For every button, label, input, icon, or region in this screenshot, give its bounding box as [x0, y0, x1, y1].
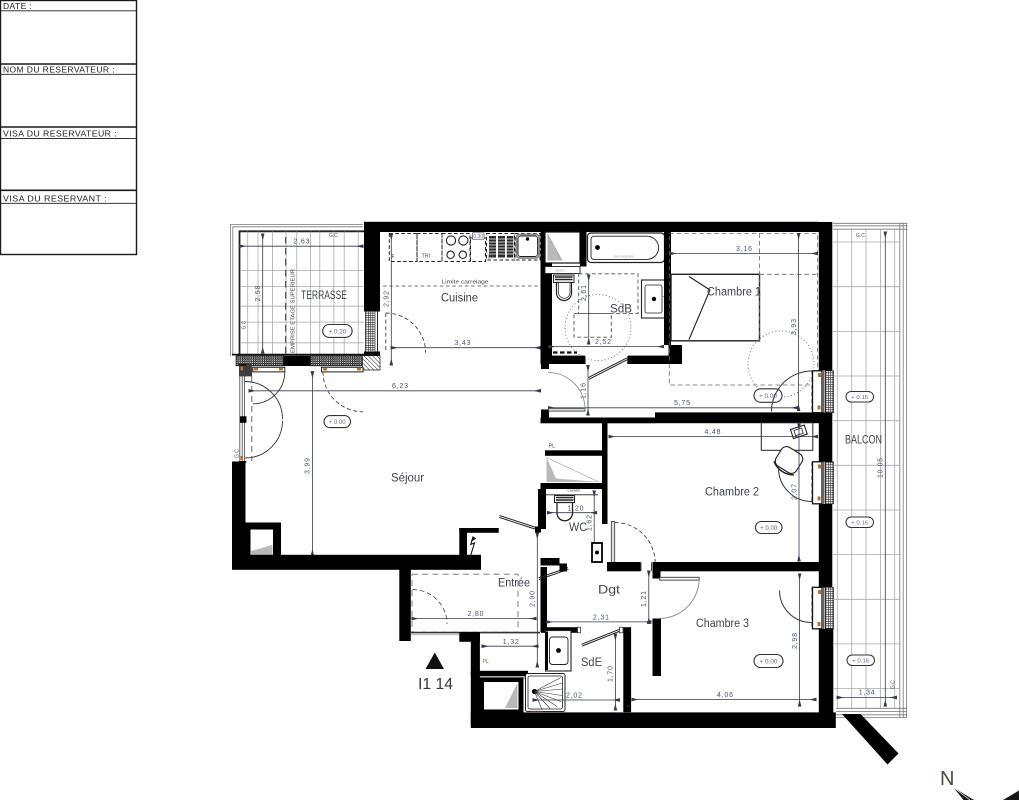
svg-text:3,93: 3,93	[791, 319, 798, 335]
svg-text:DATE :: DATE :	[3, 1, 32, 11]
svg-text:1,62: 1,62	[587, 515, 594, 531]
svg-text:3,43: 3,43	[455, 340, 471, 347]
svg-text:G.C: G.C	[235, 449, 241, 458]
svg-text:receveur: receveur	[530, 709, 544, 713]
svg-text:2,63: 2,63	[294, 238, 310, 245]
svg-text:2,90: 2,90	[530, 591, 537, 607]
svg-text:WC: WC	[569, 522, 587, 534]
svg-text:+ 0.00: + 0.00	[329, 420, 347, 426]
svg-text:EMPRISE ETAGE SUPERIEUR: EMPRISE ETAGE SUPERIEUR	[291, 269, 297, 353]
svg-text:1,32: 1,32	[503, 639, 519, 646]
svg-text:+ 0.15: + 0.15	[852, 659, 869, 665]
svg-text:2,98: 2,98	[792, 633, 799, 649]
svg-text:G.C: G.C	[242, 320, 248, 329]
svg-text:2,58: 2,58	[255, 285, 262, 301]
svg-text:Limite carrelage: Limite carrelage	[442, 280, 489, 286]
svg-text:SdE: SdE	[581, 657, 602, 669]
svg-text:2,61: 2,61	[581, 285, 588, 301]
svg-text:6,23: 6,23	[392, 383, 408, 390]
svg-text:N: N	[940, 768, 954, 790]
svg-text:1,16: 1,16	[580, 383, 587, 399]
svg-text:2,52: 2,52	[595, 339, 611, 346]
svg-text:1,21: 1,21	[641, 591, 648, 607]
svg-text:LV: LV	[488, 255, 494, 261]
svg-text:NOM DU RESERVATEUR :: NOM DU RESERVATEUR :	[3, 65, 115, 75]
svg-text:PL: PL	[549, 444, 556, 450]
svg-text:care-baignoire: care-baignoire	[613, 255, 634, 259]
svg-text:G.C: G.C	[329, 233, 338, 239]
svg-text:I1 14: I1 14	[418, 676, 453, 693]
svg-text:2,80: 2,80	[468, 611, 484, 618]
svg-text:2,31: 2,31	[593, 614, 609, 621]
svg-text:+ 0.00: + 0.00	[760, 526, 778, 532]
svg-text:Dgt: Dgt	[598, 585, 621, 597]
svg-text:2,92: 2,92	[384, 291, 391, 307]
svg-text:0.30: 0.30	[473, 234, 483, 240]
svg-text:VISA DU RESERVATEUR :: VISA DU RESERVATEUR :	[3, 129, 117, 139]
svg-text:2,07: 2,07	[791, 484, 798, 500]
svg-text:3,99: 3,99	[305, 458, 312, 474]
svg-text:Chambre 2: Chambre 2	[705, 487, 759, 499]
svg-text:4,06: 4,06	[717, 692, 733, 699]
svg-text:+ 0.15: + 0.15	[851, 395, 868, 401]
svg-text:Entrée: Entrée	[498, 578, 530, 590]
svg-text:TRI: TRI	[422, 254, 431, 260]
svg-text:1,20: 1,20	[568, 505, 584, 512]
svg-text:4,48: 4,48	[705, 429, 721, 436]
svg-text:Lavabo: Lavabo	[568, 489, 580, 493]
svg-text:P.: P.	[627, 704, 630, 709]
svg-text:2,02: 2,02	[566, 692, 582, 699]
svg-text:lavabo: lavabo	[555, 269, 565, 273]
svg-text:+ 0.15: + 0.15	[851, 521, 868, 527]
svg-text:F: F	[392, 254, 395, 260]
svg-text:+ 0.00: + 0.00	[760, 660, 779, 666]
svg-text:1,70: 1,70	[608, 666, 615, 682]
svg-text:G.C: G.C	[891, 680, 897, 689]
svg-text:3,16: 3,16	[736, 246, 752, 253]
svg-text:BALCON: BALCON	[845, 435, 882, 447]
svg-text:G.C: G.C	[856, 233, 865, 239]
svg-text:Cuisine: Cuisine	[441, 293, 478, 305]
svg-text:PL: PL	[483, 659, 490, 665]
svg-text:TERRASSE: TERRASSE	[301, 290, 347, 302]
svg-text:1,34: 1,34	[859, 690, 875, 697]
svg-text:10,05: 10,05	[878, 458, 885, 478]
svg-text:Chambre 1: Chambre 1	[707, 287, 761, 299]
svg-text:+ 0.20: + 0.20	[328, 330, 347, 336]
svg-text:Chambre 3: Chambre 3	[696, 618, 749, 630]
svg-text:VISA DU RESERVANT :: VISA DU RESERVANT :	[3, 193, 107, 203]
svg-text:5,75: 5,75	[674, 400, 690, 407]
svg-text:Séjour: Séjour	[391, 473, 424, 485]
